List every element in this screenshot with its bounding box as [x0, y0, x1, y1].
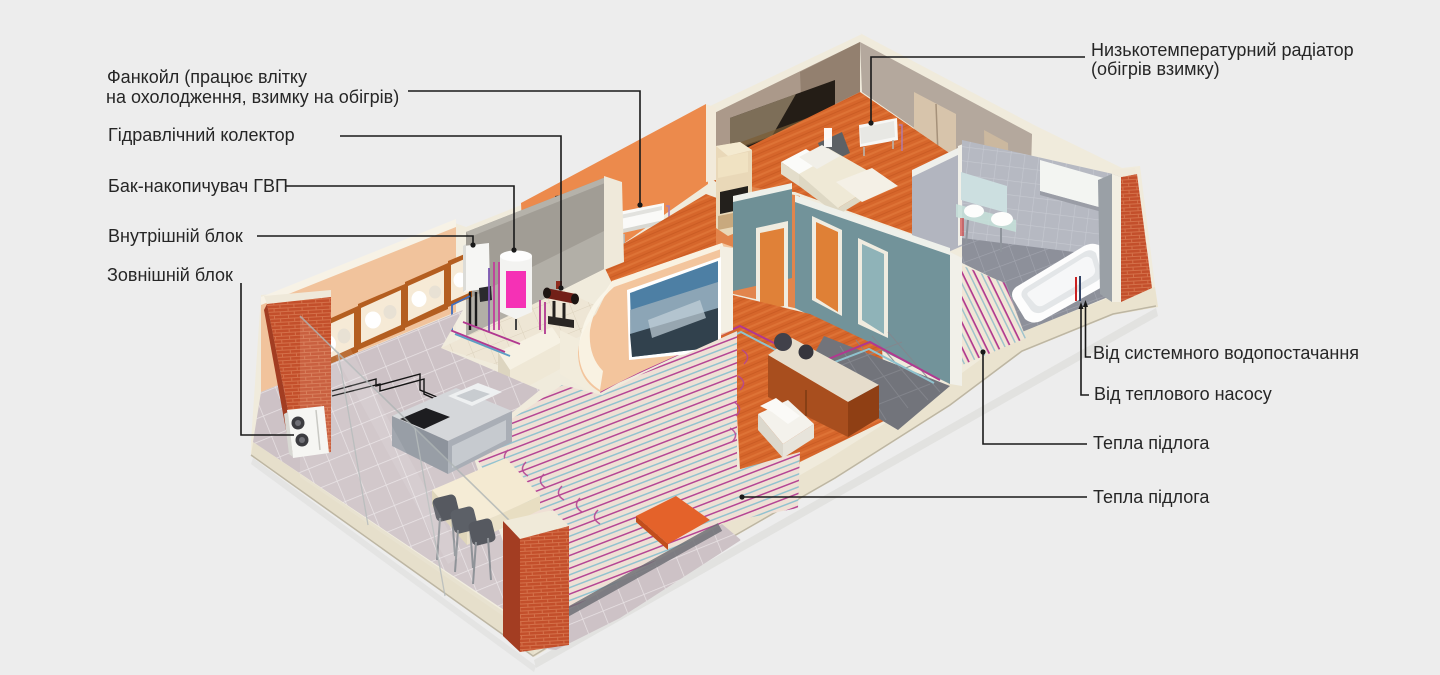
svg-text:(обігрів взимку): (обігрів взимку) — [1091, 59, 1220, 79]
svg-text:на охолодження, взимку на обіг: на охолодження, взимку на обігрів) — [106, 87, 399, 107]
svg-text:Тепла підлога: Тепла підлога — [1093, 433, 1210, 453]
svg-text:Від системного водопостачання: Від системного водопостачання — [1093, 343, 1359, 363]
svg-text:Гідравлічний колектор: Гідравлічний колектор — [108, 125, 295, 145]
svg-text:Бак-накопичувач ГВП: Бак-накопичувач ГВП — [108, 176, 288, 196]
svg-text:Тепла підлога: Тепла підлога — [1093, 487, 1210, 507]
svg-text:Зовнішній блок: Зовнішній блок — [107, 265, 233, 285]
svg-text:Низькотемпературний радіатор: Низькотемпературний радіатор — [1091, 40, 1354, 60]
svg-text:Фанкойл (працює влітку: Фанкойл (працює влітку — [107, 67, 307, 87]
svg-text:Внутрішній блок: Внутрішній блок — [108, 226, 243, 246]
svg-text:Від теплового насосу: Від теплового насосу — [1094, 384, 1272, 404]
